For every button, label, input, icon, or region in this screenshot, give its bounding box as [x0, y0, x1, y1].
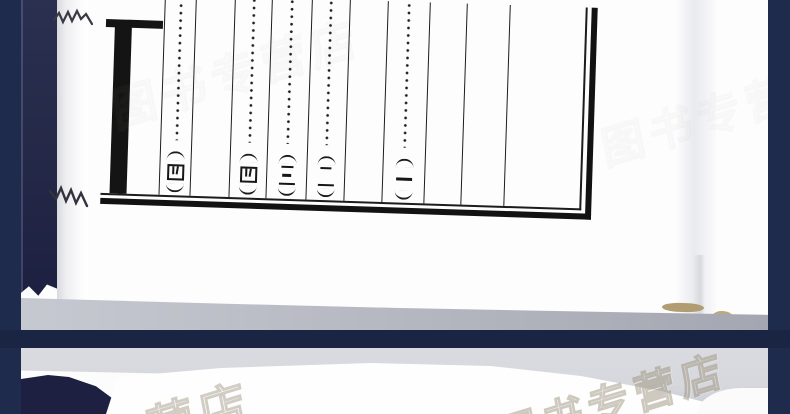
toc-item-label	[277, 149, 297, 200]
frame-border-right-outer	[585, 8, 598, 220]
toc-column	[305, 0, 349, 201]
separator-band	[0, 330, 790, 348]
numeral-glyph	[395, 169, 413, 189]
toc-column	[265, 0, 311, 200]
photo-book-toc-page: 图书专营店 图书专营店	[21, 0, 768, 330]
book-cover-spine	[21, 0, 57, 297]
toc-column	[189, 0, 234, 197]
vertical-paren-open-icon	[278, 155, 296, 165]
dotted-leader	[402, 2, 412, 148]
dotted-leader	[285, 0, 295, 144]
toc-item-label	[316, 150, 336, 201]
vertical-paren-close-icon	[239, 185, 257, 195]
vertical-paren-close-icon	[166, 183, 184, 193]
toc-item-label	[238, 147, 258, 198]
vertical-paren-open-icon	[317, 156, 335, 166]
banxin-black-bar	[110, 26, 132, 193]
dotted-leader	[174, 0, 184, 140]
toc-columns	[158, 0, 584, 208]
numeral-glyph-si	[239, 166, 257, 183]
vertical-paren-close-icon	[316, 188, 334, 198]
vertical-paren-close-icon	[277, 187, 295, 197]
toc-column	[503, 5, 584, 208]
toc-column	[343, 0, 387, 202]
dotted-leader	[324, 0, 334, 145]
vertical-paren-open-icon	[167, 151, 185, 161]
product-image-stage: 图书专营店 图书专营店 图书专营店 图书专营店	[0, 0, 790, 414]
toc-item-label	[165, 145, 185, 196]
toc-column	[381, 1, 429, 203]
toc-item-label	[394, 152, 414, 203]
numeral-glyph	[278, 166, 296, 186]
vertical-paren-open-icon	[240, 153, 258, 163]
tan-page-edge	[662, 302, 704, 312]
numeral-glyph	[317, 167, 335, 187]
thread-stitch-icon	[49, 179, 89, 211]
photo-book-stack: 图书专营店 图书专营店	[21, 348, 768, 414]
dotted-leader	[247, 0, 257, 143]
white-page-sheet-main	[21, 348, 768, 414]
vertical-paren-close-icon	[394, 190, 412, 200]
vertical-paren-open-icon	[395, 158, 413, 168]
page-fore-edge	[57, 0, 88, 302]
numeral-glyph-si	[166, 164, 184, 181]
toc-column	[460, 4, 509, 206]
printed-frame	[99, 0, 606, 248]
thread-stitch-icon	[53, 5, 93, 29]
white-page-corner	[697, 388, 768, 414]
